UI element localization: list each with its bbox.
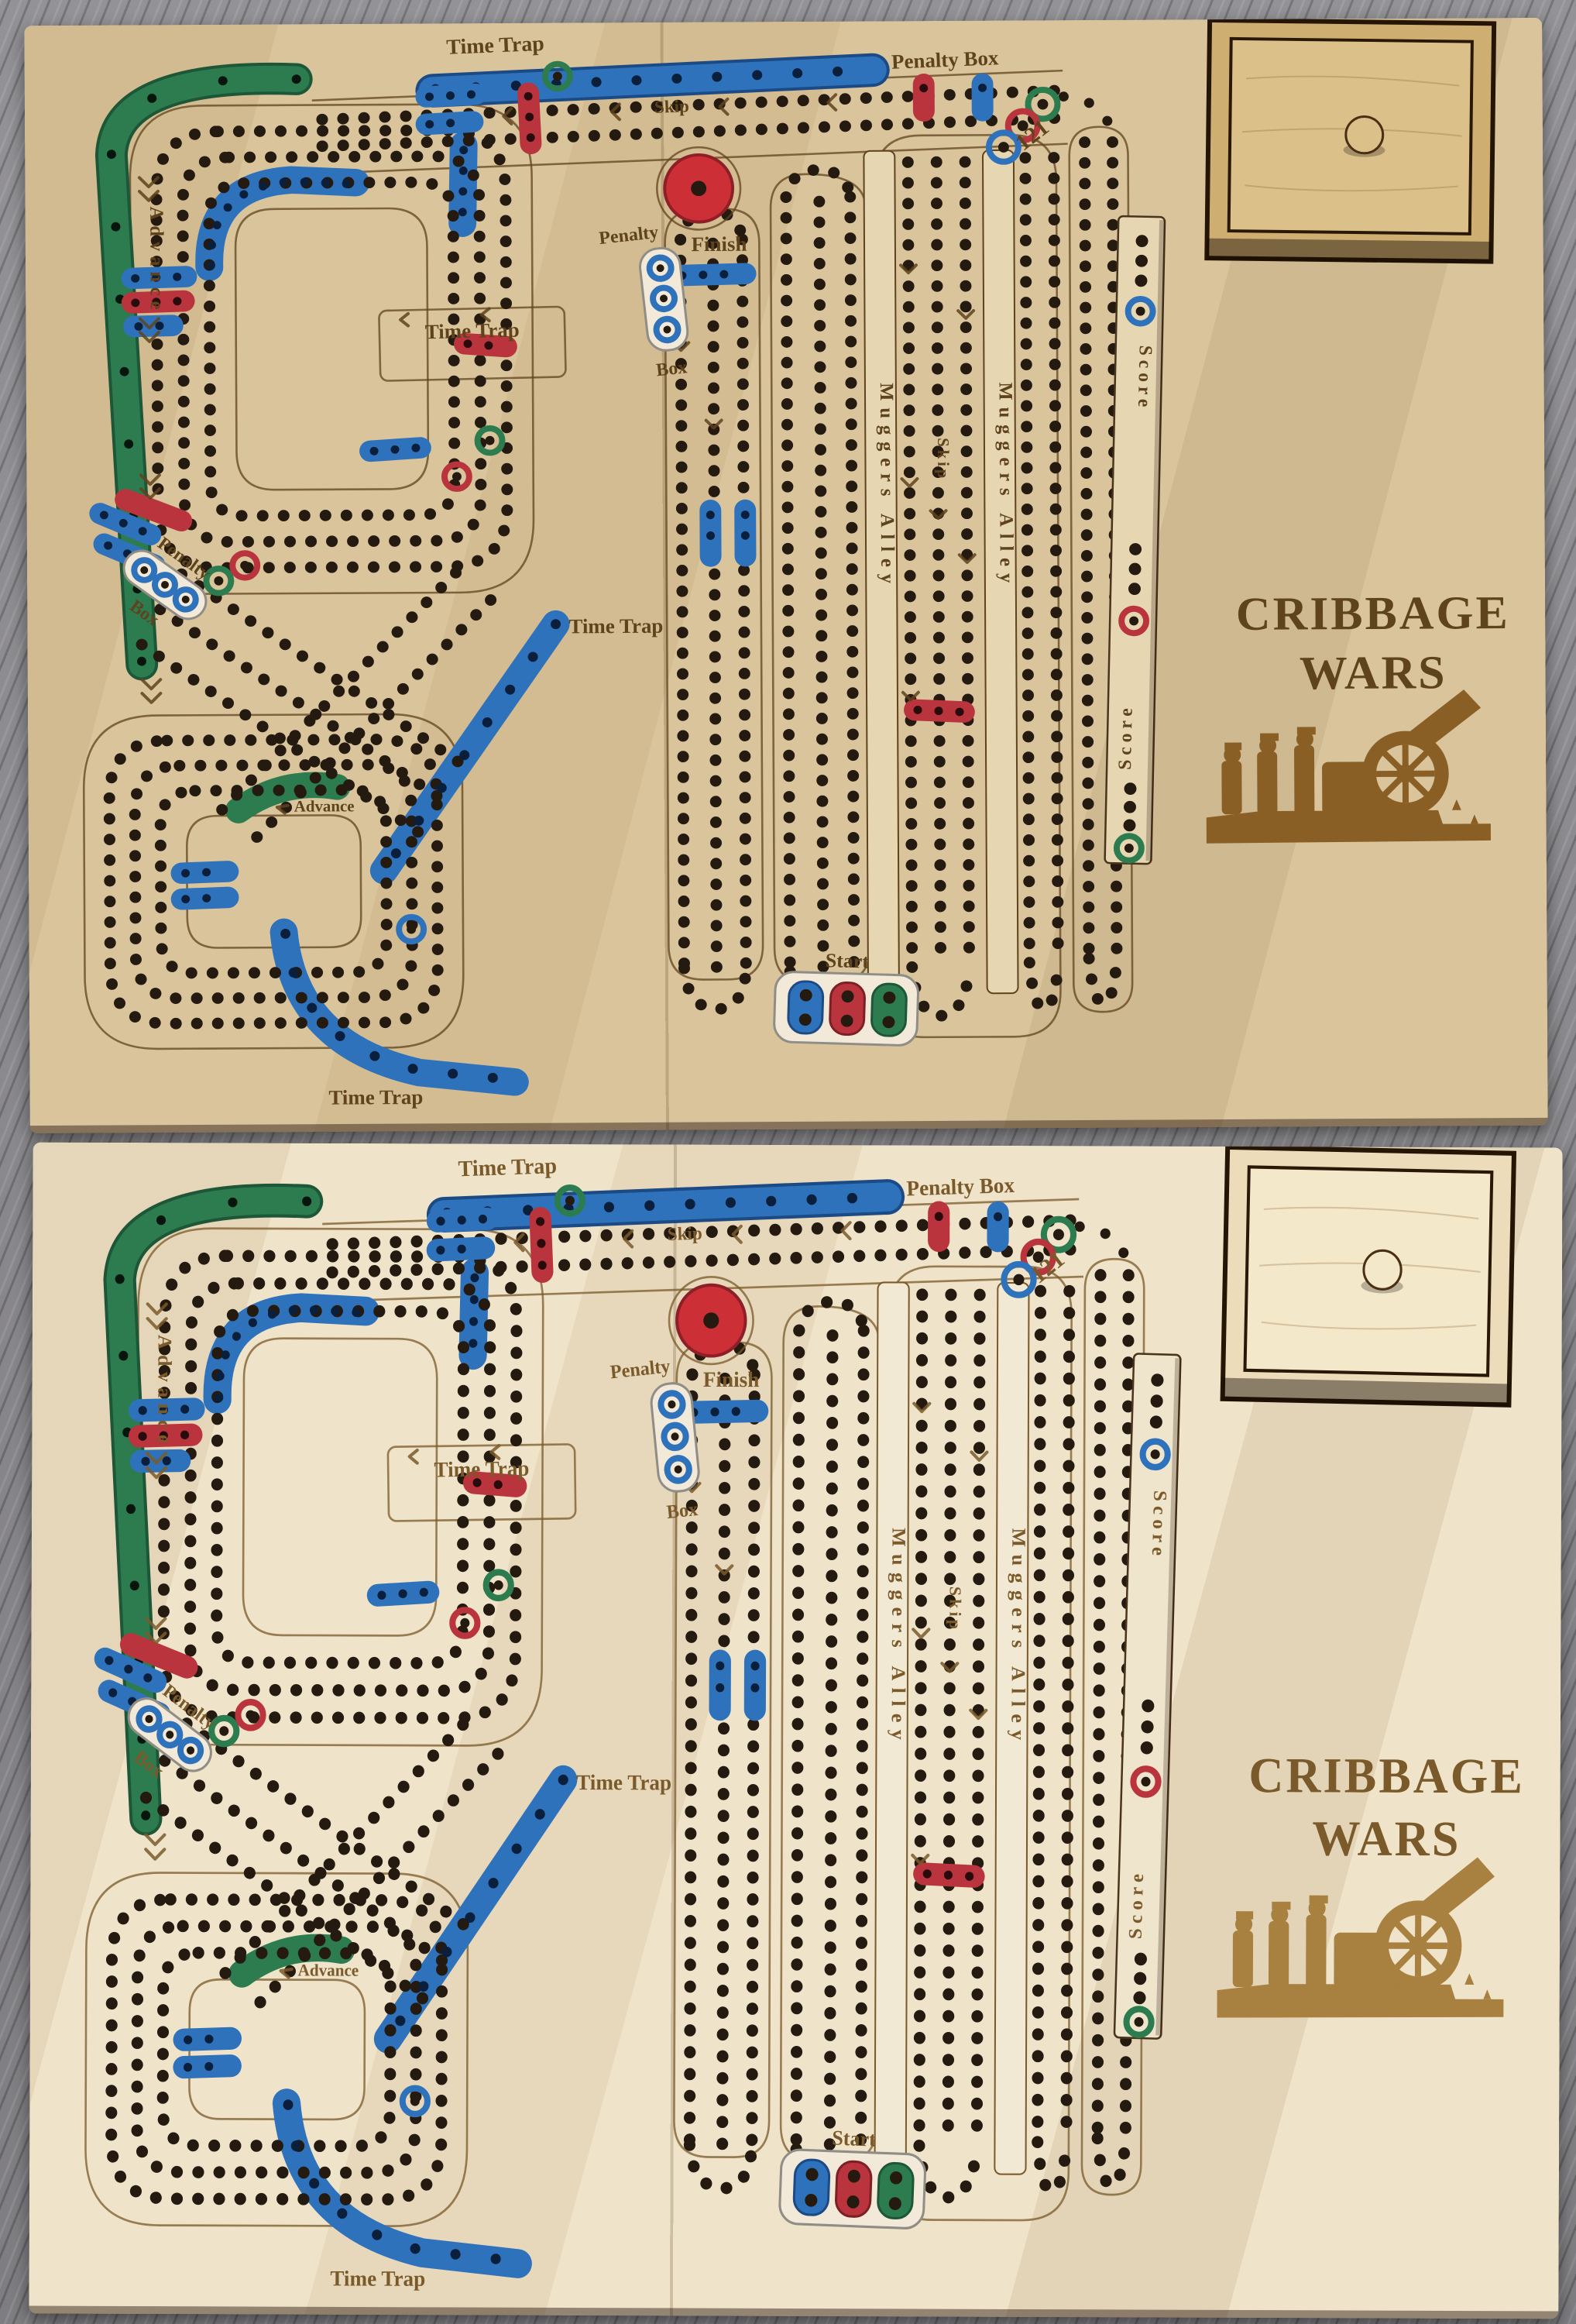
score-label-1: Score bbox=[1134, 346, 1155, 412]
colored-overlay-tracks bbox=[116, 1195, 888, 2265]
advance-label-center: Advance bbox=[298, 1961, 359, 1980]
title-line-2: WARS bbox=[1300, 647, 1447, 700]
blue-time-trap-center-curve bbox=[209, 180, 356, 267]
box-label: Box bbox=[655, 357, 688, 380]
center-penalty-box-holder: Penalty Box bbox=[609, 1354, 704, 1528]
time-trap-label-top: Time Trap bbox=[446, 32, 545, 60]
engraved-track-outlines bbox=[80, 70, 1132, 1050]
finish-assembly: Finish bbox=[669, 1277, 760, 1391]
title-block: CRIBBAGE WARS bbox=[1248, 1747, 1525, 1867]
penalty-box-label-top: Penalty Box bbox=[891, 46, 999, 73]
cribbage-board: 121 Finish Penalty Box Penalty Box Start bbox=[24, 18, 1547, 1133]
box-label: Box bbox=[666, 1499, 699, 1524]
score-strip: Score Score bbox=[1105, 216, 1166, 864]
peg-storage-box bbox=[1207, 20, 1494, 263]
board-lower: 121 Finish Penalty Box Penalty Box Start bbox=[29, 1143, 1562, 2319]
board-artwork: 121 Finish Penalty Box Penalty Box Start bbox=[24, 18, 1547, 1133]
finish-label: Finish bbox=[691, 232, 747, 256]
time-trap-label-bottom: Time Trap bbox=[330, 2266, 425, 2291]
score-label-1: Score bbox=[1148, 1490, 1170, 1561]
muggers-alley-label-1: Muggers Alley bbox=[888, 1528, 910, 1747]
board-upper: 121 Finish Penalty Box Penalty Box Start bbox=[24, 18, 1547, 1133]
time-trap-label-mid: Time Trap bbox=[576, 1770, 671, 1795]
time-trap-label-bottom: Time Trap bbox=[328, 1085, 423, 1109]
skip-label-alley: Skip bbox=[934, 438, 953, 481]
photo-of-cribbage-boards: 121 Finish Penalty Box Penalty Box Start bbox=[0, 0, 1576, 2324]
start-label: Start bbox=[832, 2126, 877, 2151]
skip-label-top: Skip bbox=[667, 1223, 702, 1245]
muggers-alley-label-2: Muggers Alley bbox=[994, 382, 1017, 590]
title-line-1: CRIBBAGE bbox=[1236, 586, 1510, 640]
penalty-label: Penalty bbox=[609, 1356, 672, 1384]
muggers-alley-label-1: Muggers Alley bbox=[876, 383, 898, 590]
blue-time-trap-bottom-curve bbox=[284, 931, 515, 1084]
score-strip: Score Score bbox=[1114, 1353, 1182, 2039]
advance-label-center: Advance bbox=[294, 796, 355, 815]
blue-time-trap-center-curve bbox=[218, 1308, 366, 1400]
time-trap-label-center: Time Trap bbox=[424, 318, 520, 344]
score-label-2: Score bbox=[1115, 703, 1137, 770]
cribbage-board: 121 Finish Penalty Box Penalty Box Start bbox=[29, 1143, 1562, 2319]
advance-label-left: Advance bbox=[146, 207, 167, 315]
title-line-2: WARS bbox=[1312, 1810, 1461, 1867]
skip-label-alley: Skip bbox=[946, 1587, 965, 1632]
penalty-box-label-top: Penalty Box bbox=[906, 1173, 1015, 1201]
blue-time-trap-bottom-curve bbox=[286, 2103, 518, 2264]
box-knob bbox=[1346, 116, 1383, 153]
cannon-engraving bbox=[1206, 689, 1491, 844]
finish-assembly: Finish bbox=[657, 147, 747, 256]
box-knob bbox=[1363, 1250, 1401, 1290]
finish-label: Finish bbox=[703, 1367, 759, 1392]
score-label-2: Score bbox=[1125, 1868, 1148, 1939]
advance-label-left: Advance bbox=[153, 1335, 176, 1449]
title-block: CRIBBAGE WARS bbox=[1236, 586, 1511, 700]
time-trap-label-top: Time Trap bbox=[458, 1153, 557, 1182]
title-line-1: CRIBBAGE bbox=[1248, 1747, 1525, 1803]
time-trap-label-center: Time Trap bbox=[434, 1456, 529, 1481]
muggers-alley-label-2: Muggers Alley bbox=[1007, 1528, 1029, 1748]
penalty-label: Penalty bbox=[598, 222, 660, 249]
board-artwork: 121 Finish Penalty Box Penalty Box Start bbox=[29, 1143, 1562, 2319]
skip-label-top: Skip bbox=[654, 96, 690, 117]
cannon-engraving bbox=[1217, 1856, 1504, 2019]
peg-storage-box bbox=[1223, 1147, 1514, 1407]
start-label: Start bbox=[825, 949, 869, 972]
time-trap-label-mid: Time Trap bbox=[568, 614, 663, 638]
